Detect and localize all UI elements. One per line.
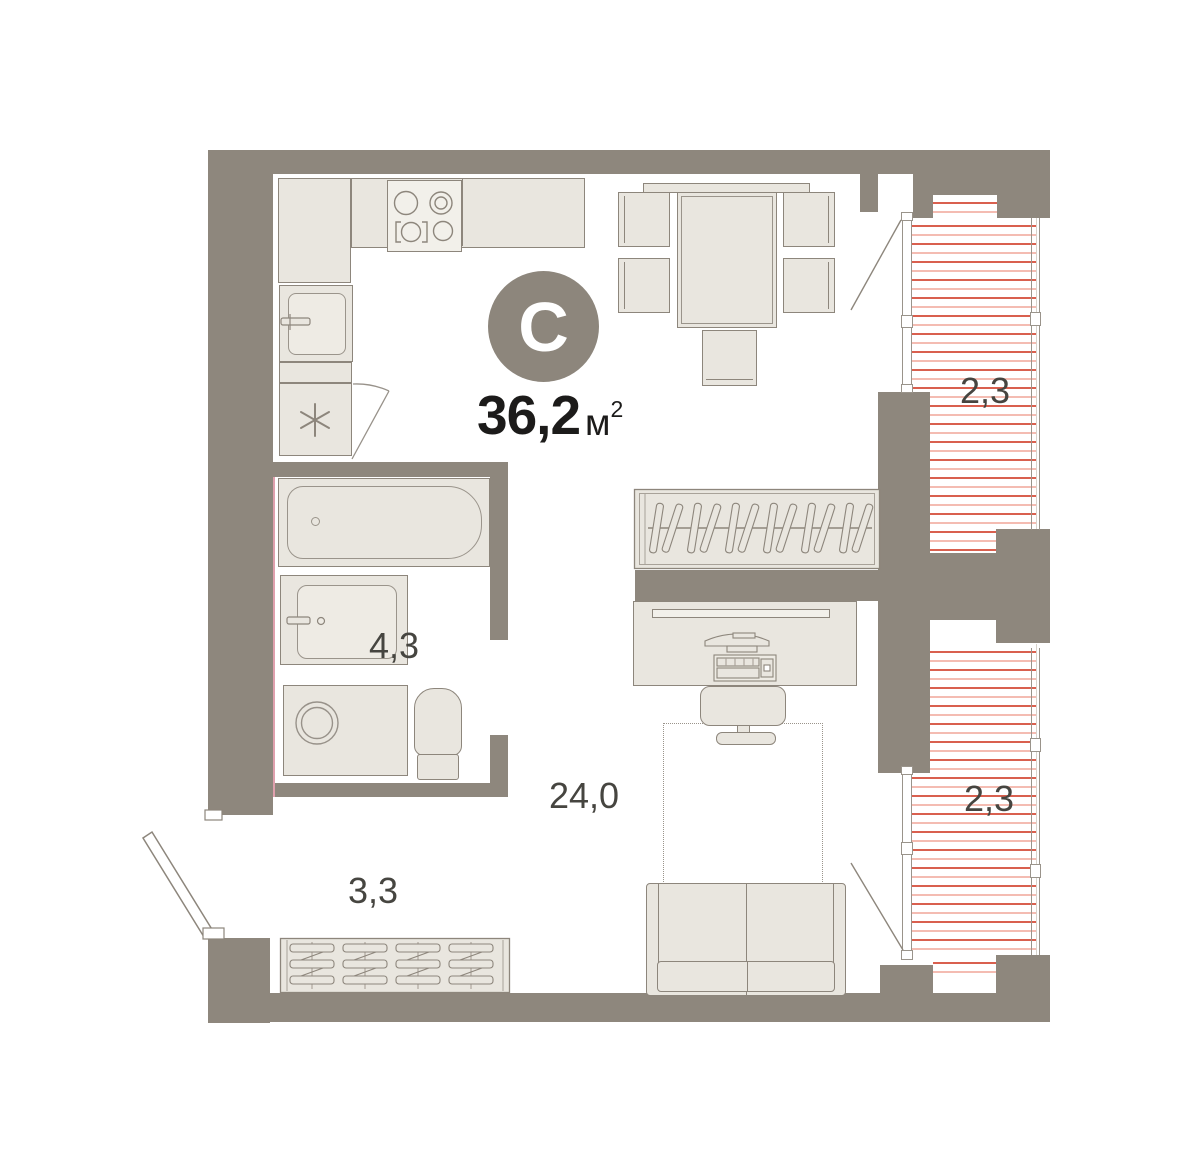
window-icon-lower-balcony (902, 773, 912, 958)
entry-door (143, 810, 224, 939)
wall-bath-bottom (250, 783, 508, 797)
desk-shelf (652, 609, 830, 618)
wall-top (208, 150, 1050, 174)
toilet-icon (414, 688, 462, 756)
wall-wardrobe-niche (635, 570, 880, 601)
apartment-type-badge: С (488, 271, 599, 382)
bathtub-icon (278, 478, 490, 567)
wall-between-balconies-column (996, 529, 1050, 643)
dining-chair (618, 192, 670, 247)
kitchen-sink-cabinet (279, 285, 353, 362)
stove (387, 180, 462, 252)
balcony-top-floor-notch (933, 195, 997, 218)
wall-top-right-b (997, 174, 1050, 218)
sink-icon (288, 293, 346, 355)
dining-table-top (681, 196, 773, 324)
wall-bath-top (250, 462, 508, 477)
window-icon-upper-balcony (902, 218, 912, 392)
wall-top-jamb (860, 174, 878, 212)
wall-left (208, 150, 273, 815)
total-area: 36,2 м 2 (477, 388, 623, 443)
door-swing-icon-lower-balcony (851, 863, 903, 950)
wall-top-right-notch (933, 174, 997, 195)
room-label-balcony-top: 2,3 (925, 370, 1045, 412)
kitchen-counter-left (278, 178, 351, 283)
counter-joint (462, 179, 463, 246)
wall-top-right-a (913, 174, 933, 218)
fold-out-bed-outline (663, 723, 823, 884)
washer-icon (283, 685, 408, 776)
sofa-seat-band (657, 961, 835, 992)
dining-chair (783, 192, 835, 247)
wall-lower-window-jamb (880, 965, 933, 997)
fridge (279, 383, 352, 456)
total-area-value: 36,2 (477, 388, 580, 443)
wet-zone-marker (273, 477, 275, 797)
toilet-tank (417, 754, 459, 780)
dining-table (677, 192, 777, 328)
desk-chair-armbar (716, 732, 776, 745)
balcony-bottom-floor-notch (933, 955, 997, 977)
wall-hall-left-block (208, 938, 270, 1023)
floor-plan: С 36,2 м 2 2,3 2,3 4,3 24,0 3,3 (0, 0, 1200, 1173)
dining-chair (783, 258, 835, 313)
total-area-unit: м (585, 404, 610, 443)
desk-chair (700, 686, 786, 726)
room-label-hallway: 3,3 (313, 870, 433, 912)
room-label-bathroom: 4,3 (334, 625, 454, 667)
wall-bottom-right-block (996, 955, 1050, 1017)
bathtub-drain (311, 517, 320, 526)
wall-bottom (208, 993, 1050, 1022)
dining-chair (618, 258, 670, 313)
door-swing-icon-kitchen (352, 384, 389, 459)
wall-bath-right (490, 477, 508, 640)
kitchen-small-cabinet (279, 362, 352, 383)
room-label-balcony-bottom: 2,3 (929, 778, 1049, 820)
badge-letter: С (518, 287, 569, 367)
sofa-arm-line (658, 884, 659, 963)
wardrobe-hangers-icon (635, 490, 880, 569)
sofa (646, 883, 846, 996)
desk (633, 601, 857, 686)
sofa-arm-line (833, 884, 834, 963)
shoe-rack-icon (281, 939, 510, 993)
dining-chair (702, 330, 757, 386)
sofa-seat-divider (747, 962, 748, 991)
room-label-living: 24,0 (524, 775, 644, 817)
wall-between-balconies (908, 553, 1000, 620)
door-swing-icon-upper-balcony (851, 220, 901, 310)
total-area-sup: 2 (610, 398, 623, 421)
